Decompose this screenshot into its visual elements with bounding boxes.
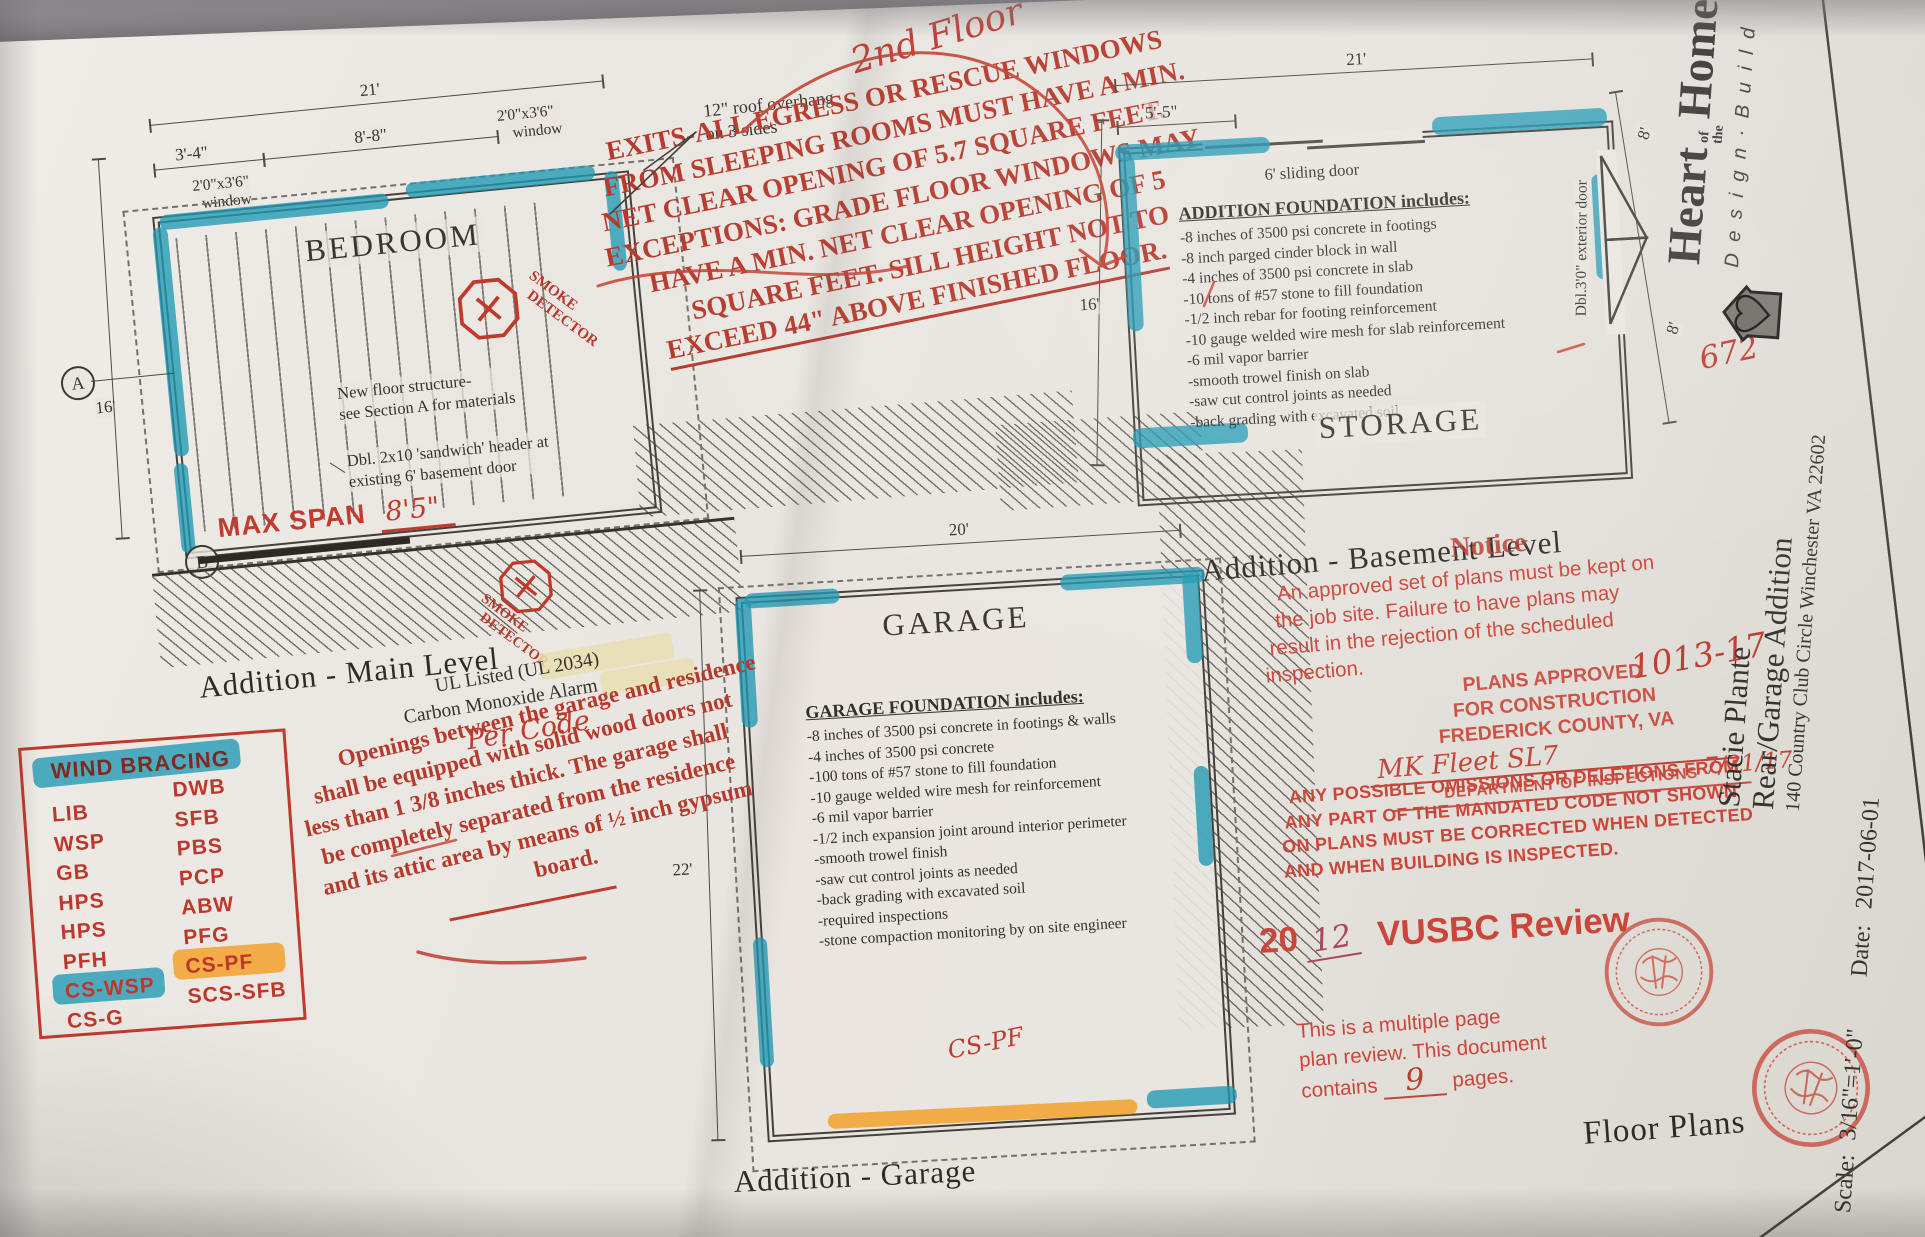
dim-label-8ft-top: 8'	[1633, 125, 1655, 142]
page-count-stamp: This is a multiple page plan review. Thi…	[1296, 1000, 1550, 1106]
pages-label: pages.	[1451, 1062, 1514, 1095]
dim-label-height: 16'	[1079, 294, 1100, 315]
contains-label: contains	[1300, 1072, 1378, 1106]
garage-foundation-list: GARAGE FOUNDATION includes: -8 inches of…	[805, 684, 1134, 953]
scanned-floor-plan-sheet: 21' 3'-4" 8'-8" 2'0"x3'6"window 2'0"x3'6…	[0, 0, 1925, 1237]
firm-name-heart: Heart	[1657, 145, 1719, 266]
vusbc-year-handwritten: 12	[1301, 916, 1362, 963]
addition-foundation-list: ADDITION FOUNDATION includes: -8 inches …	[1178, 186, 1510, 433]
page-count-handwritten: 9	[1382, 1064, 1447, 1099]
window-label-right: 2'0"x3'6"window	[496, 102, 563, 144]
firm-name-home: Home	[1667, 0, 1729, 120]
scale-label: Scale:	[1830, 1154, 1860, 1214]
county-seal-icon	[1596, 912, 1722, 1032]
wind-bracing-stamp: WIND BRACING LIB WSP GB HPS HPS PFH CS-W…	[18, 728, 307, 1039]
dim-label: 21'	[1346, 49, 1367, 70]
vusbc-year-prefix: 20	[1258, 920, 1299, 962]
smoke-detector-icon	[455, 275, 523, 343]
wind-bracing-right-column: DWB SFB PBS PCP ABW PFG CS-PF SCS-SFB	[171, 769, 287, 1012]
dim-label: 5'-5"	[1144, 102, 1178, 124]
firm-logo: Heart ofthe Home D e s i g n · B u i l d	[1652, 0, 1865, 349]
dim-label: 3'-4"	[174, 142, 208, 165]
notice-stamp-title: Notice	[1449, 527, 1528, 565]
max-span-value: 8'5"	[378, 490, 455, 533]
wind-bracing-left-column: LIB WSP GB HPS HPS PFH CS-WSP CS-G	[51, 794, 158, 1036]
dim-line-3-4	[155, 159, 265, 171]
dim-label: 8'-8"	[353, 125, 387, 148]
dim-label: 20'	[948, 519, 969, 540]
firm-name-ofthe: ofthe	[1698, 124, 1727, 145]
firm-name-block: Heart ofthe Home D e s i g n · B u i l d	[1657, 0, 1762, 268]
dim-label: 21'	[359, 79, 381, 101]
dim-label-height: 22'	[672, 859, 693, 880]
date-label: Date:	[1847, 924, 1877, 978]
exterior-door-label: Dbl.3'0" exterior door	[1573, 180, 1592, 316]
